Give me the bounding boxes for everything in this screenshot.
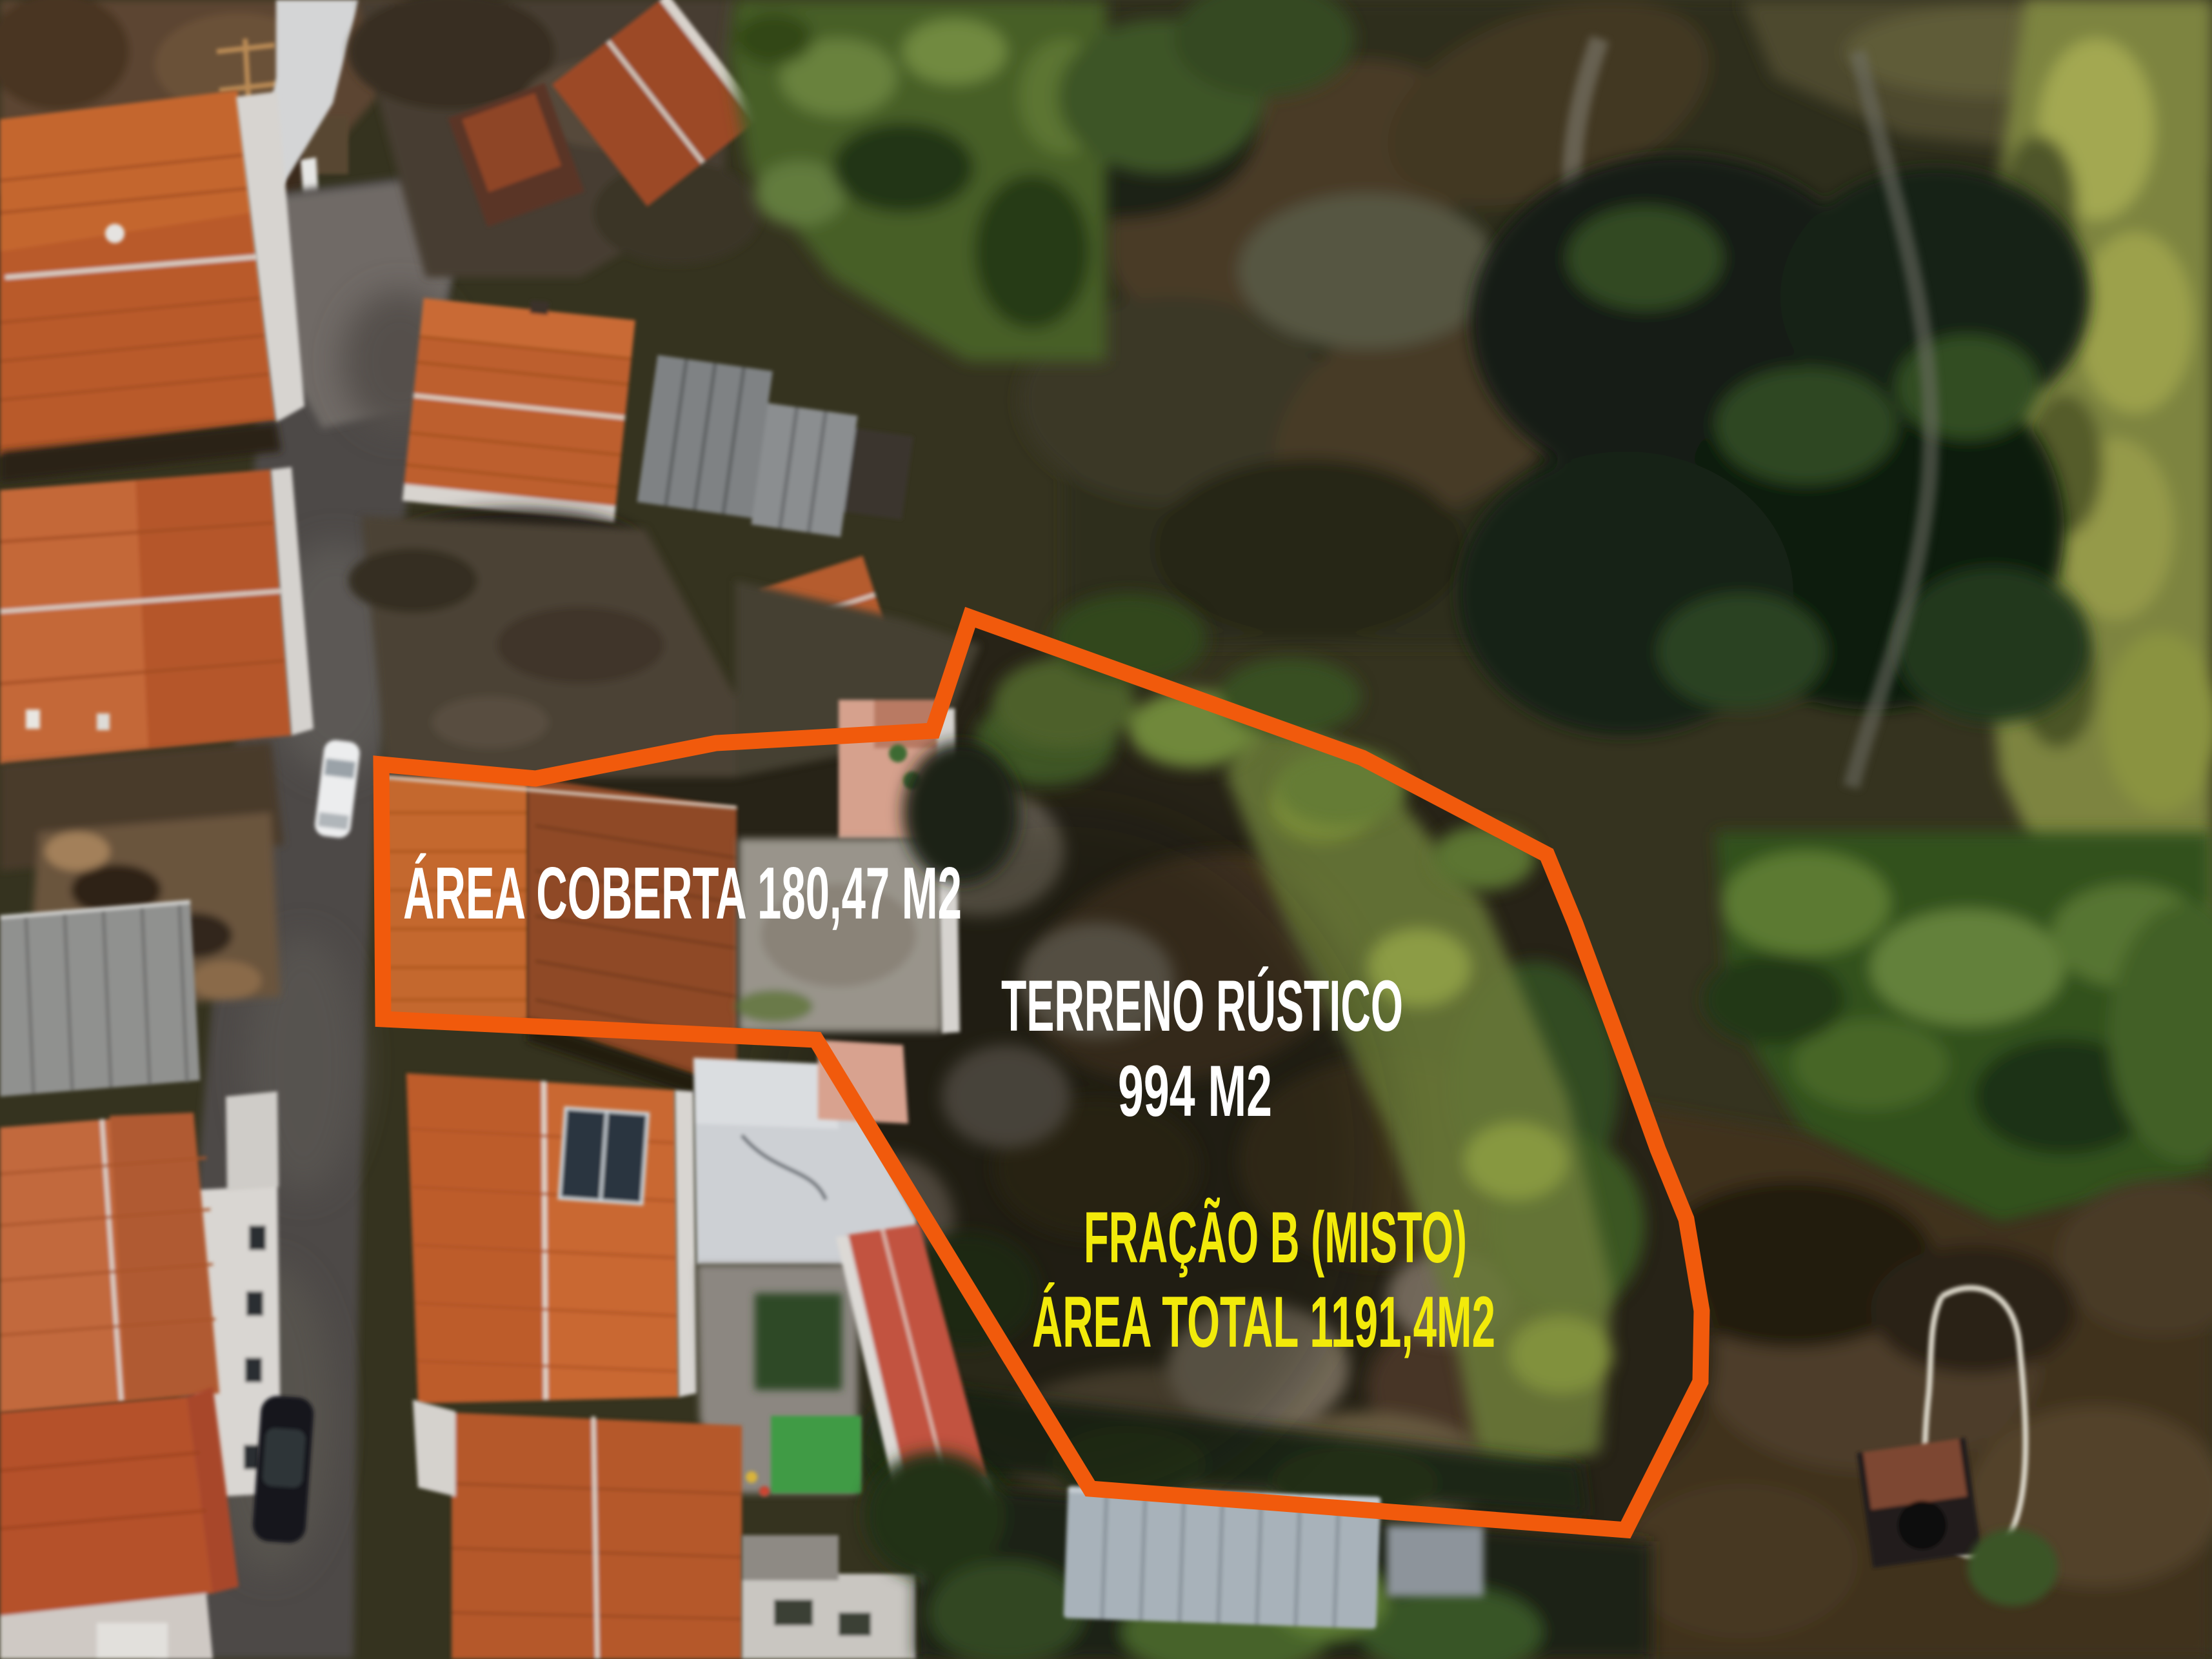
- svg-text:ÁREA TOTAL 1191,4M2: ÁREA TOTAL 1191,4M2: [1032, 1282, 1495, 1362]
- svg-text:994 M2: 994 M2: [1118, 1051, 1272, 1131]
- svg-text:ÁREA COBERTA 180,47 M2: ÁREA COBERTA 180,47 M2: [403, 853, 962, 935]
- svg-text:FRAÇÃO B (MISTO): FRAÇÃO B (MISTO): [1084, 1197, 1467, 1278]
- svg-text:TERRENO RÚSTICO: TERRENO RÚSTICO: [1001, 966, 1403, 1046]
